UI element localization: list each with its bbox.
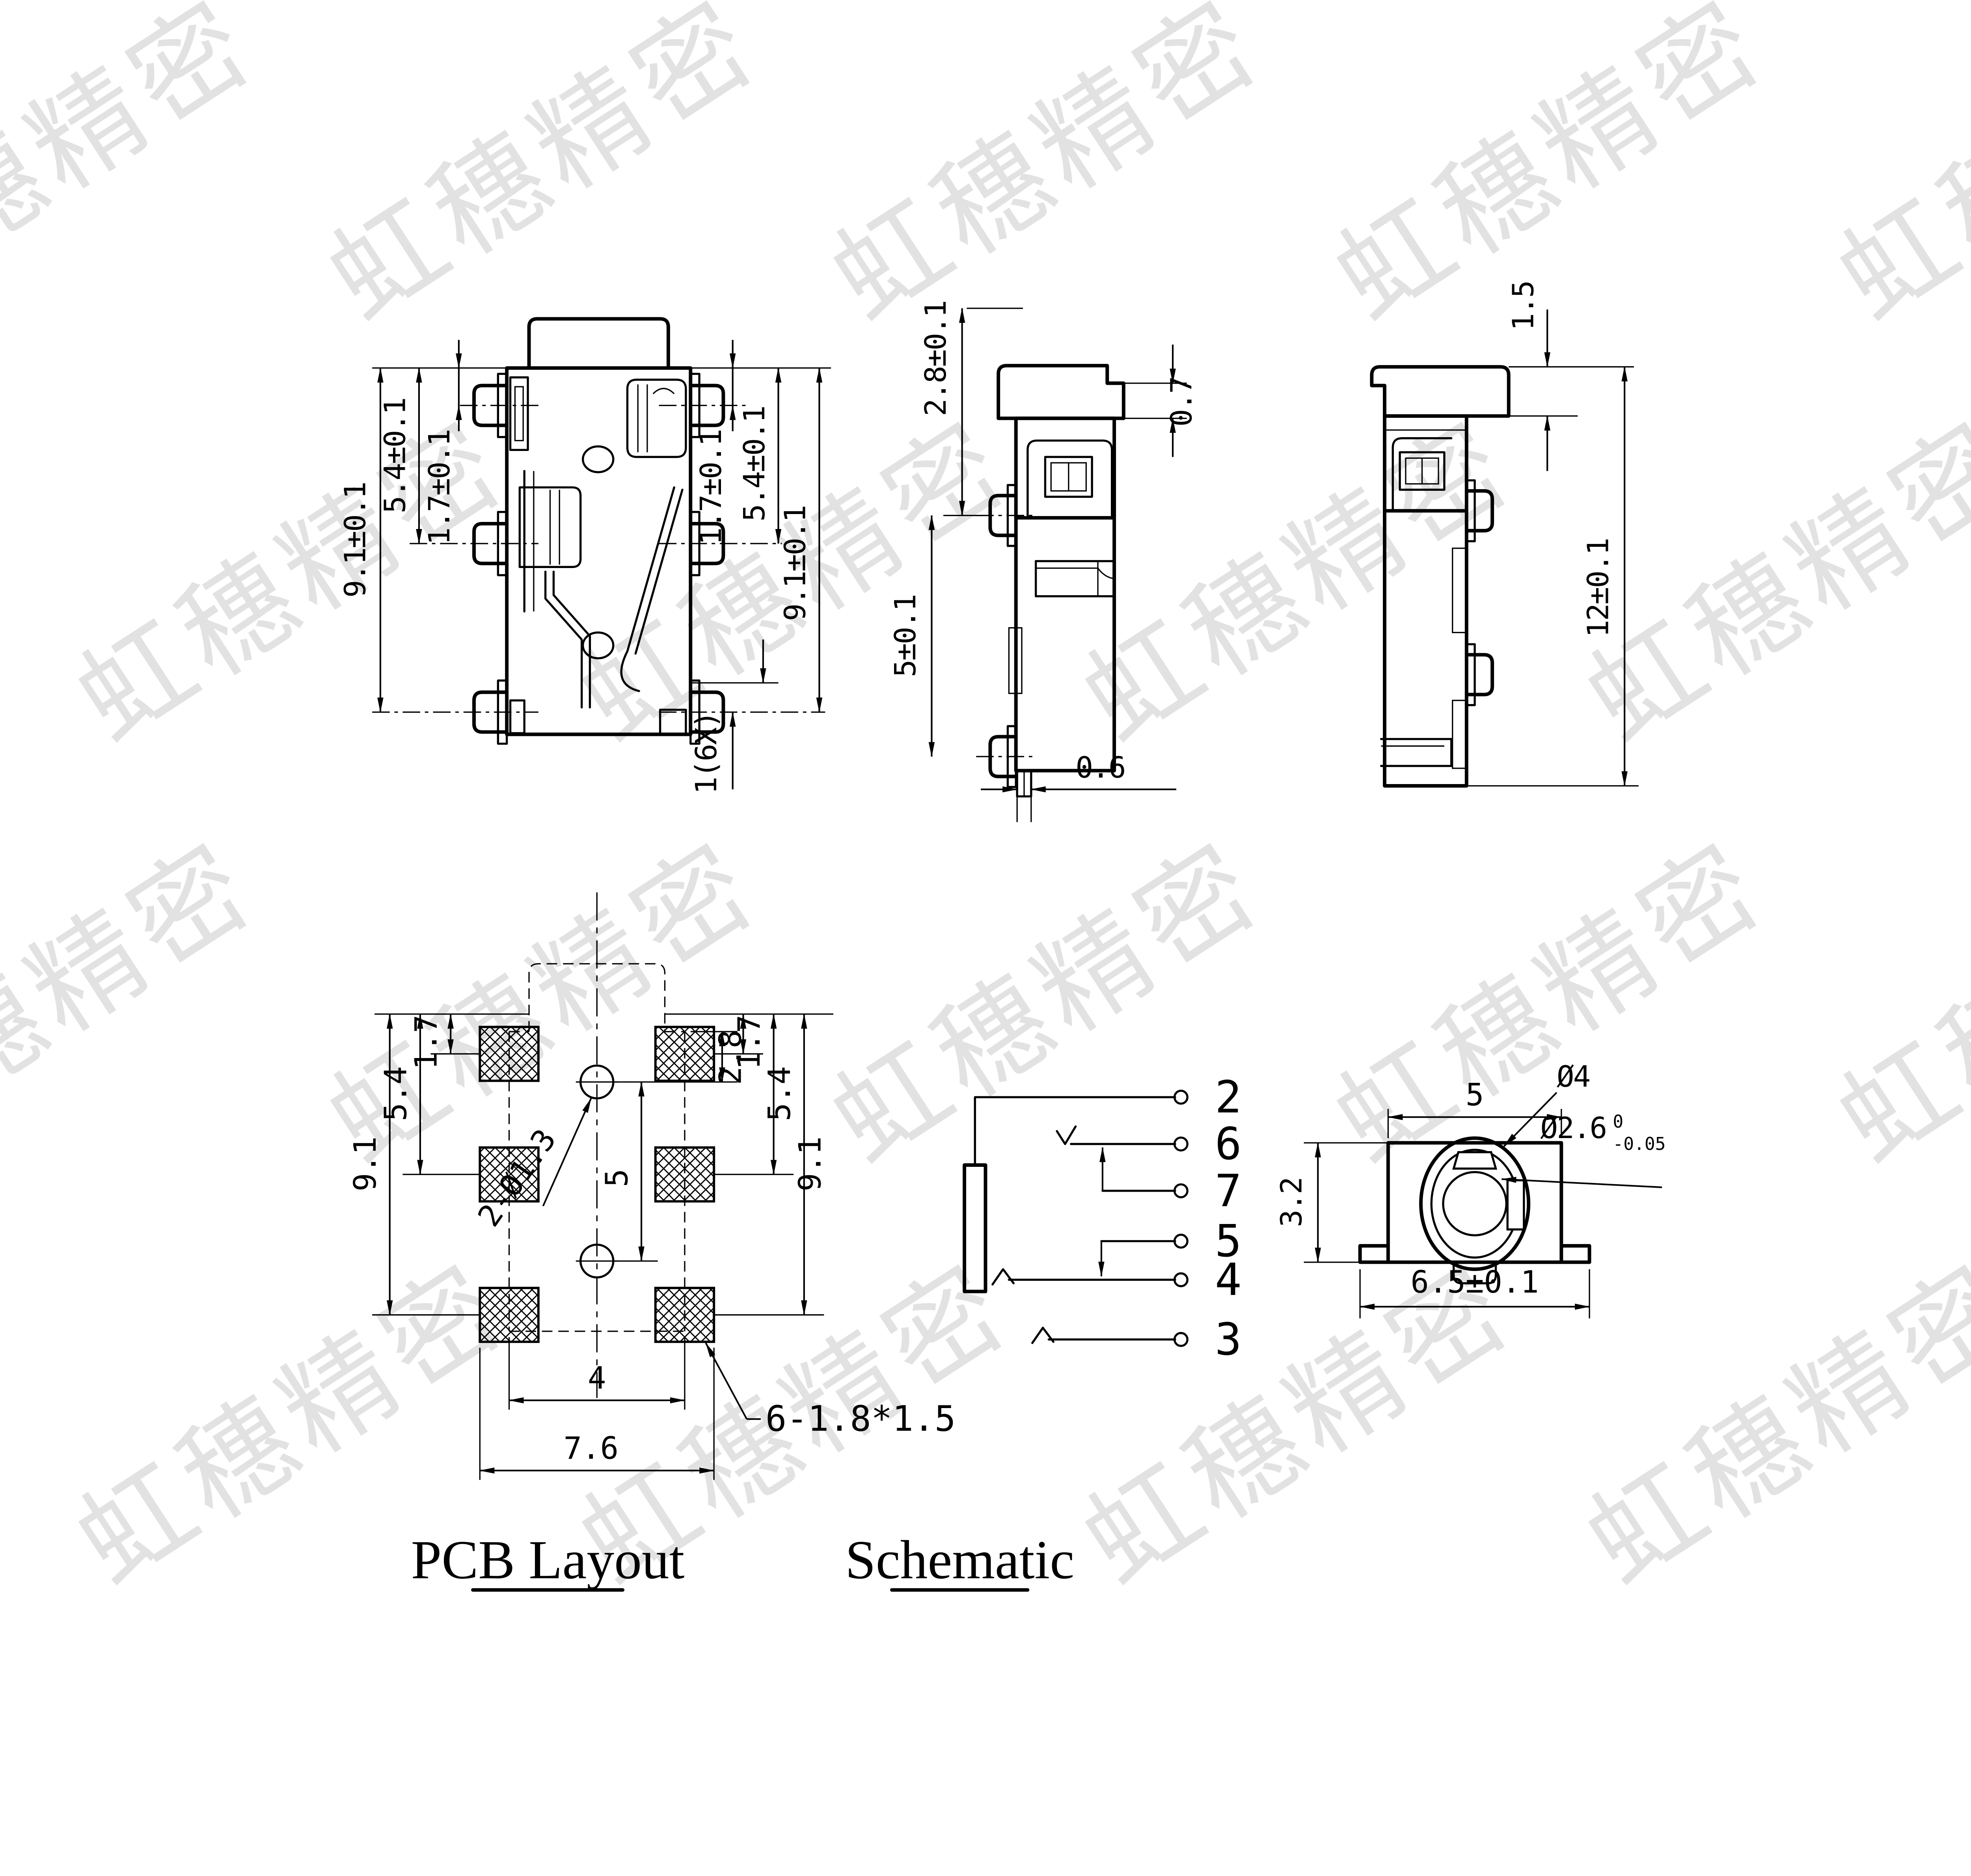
engineering-drawing: 虹穗精密虹穗精密虹穗精密虹穗精密虹穗精密虹穗精密虹穗精密虹穗精密虹穗精密虹穗精密… (0, 0, 1971, 1876)
dim-face-outer-dia: Ø4 (1557, 1060, 1590, 1094)
schematic-pin-label-6: 6 (1215, 1118, 1242, 1170)
watermark-text: 虹穗精密 (1565, 396, 1971, 767)
dim-side-b-cap-height: 1.5 (1506, 281, 1541, 331)
watermark-layer: 虹穗精密虹穗精密虹穗精密虹穗精密虹穗精密虹穗精密虹穗精密虹穗精密虹穗精密虹穗精密… (0, 0, 1971, 1610)
face-flange-right (1561, 1246, 1589, 1262)
schematic-pin6-terminal (1175, 1138, 1188, 1151)
side-a-cap (999, 366, 1124, 419)
watermark-text: 虹穗精密 (55, 396, 530, 767)
dim-face-tol-low: -0.05 (1613, 1134, 1665, 1154)
dim-front-right-overall: 9.1±0.1 (778, 506, 812, 621)
side-a-slot (1036, 561, 1114, 596)
dim-front-left-mid: 5.4±0.1 (378, 398, 412, 513)
dim-pcb-pad-pitch: 4 (588, 1361, 606, 1396)
schematic-contact-3 (1032, 1328, 1053, 1343)
schematic-pin7-terminal (1175, 1185, 1188, 1198)
side-a-body (1016, 418, 1114, 771)
watermark-text: 虹穗精密 (1313, 0, 1788, 346)
dim-face-height: 3.2 (1274, 1178, 1309, 1227)
watermark-text: 虹穗精密 (810, 0, 1285, 346)
dim-pcb-hole-pitch: 5 (599, 1169, 635, 1187)
schematic-label: Schematic (845, 1530, 1074, 1591)
watermark-text: 虹穗精密 (0, 0, 278, 346)
dim-pcb-pad-span: 7.6 (564, 1431, 618, 1466)
schematic-pin-label-4: 4 (1215, 1254, 1242, 1306)
dim-front-left-top: 1.7±0.1 (422, 430, 456, 545)
front-cap (529, 319, 668, 368)
pcb-layout-label: PCB Layout (411, 1530, 685, 1591)
schematic-pin-label-3: 3 (1215, 1313, 1242, 1366)
dim-side-b-overall-height: 12±0.1 (1581, 539, 1615, 637)
watermark-text: 虹穗精密 (1816, 0, 1971, 346)
watermark-text: 虹穗精密 (0, 817, 278, 1189)
watermark-text: 虹穗精密 (1565, 1238, 1971, 1610)
dim-pcb-left-top: 1.7 (408, 1015, 444, 1069)
dim-face-tol-high: 0 (1613, 1111, 1623, 1132)
dim-side-a-cap-height: 2.8±0.1 (918, 301, 953, 416)
schematic-pin4-terminal (1175, 1273, 1188, 1286)
schematic-pin5-terminal (1175, 1235, 1188, 1248)
face-side-notch (1507, 1180, 1524, 1230)
watermark-text: 虹穗精密 (1816, 817, 1971, 1189)
face-flange-left (1360, 1246, 1388, 1262)
schematic-pin2-terminal (1175, 1091, 1188, 1104)
dim-pcb-right-overall: 9.1 (792, 1136, 828, 1191)
schematic-contact-4 (993, 1269, 1013, 1285)
schematic-contact-6 (1057, 1127, 1076, 1144)
dim-face-width: 5 (1466, 1077, 1484, 1113)
schematic-pin3-terminal (1175, 1333, 1188, 1346)
dim-pcb-right-mid: 5.4 (762, 1066, 797, 1121)
dim-side-a-pin-pitch: 5±0.1 (888, 595, 922, 677)
side-b-slot (1381, 739, 1451, 766)
dim-front-right-mid: 5.4±0.1 (737, 406, 771, 522)
dim-face-inner-dia: Ø2.6 (1540, 1111, 1606, 1145)
schematic-pin-label-7: 7 (1215, 1164, 1242, 1217)
watermark-text: 虹穗精密 (810, 817, 1285, 1189)
side-b-cap (1372, 367, 1509, 416)
dim-pcb-left-mid: 5.4 (378, 1066, 414, 1121)
schematic-pin-label-2: 2 (1215, 1071, 1242, 1123)
dim-pcb-left-overall: 9.1 (348, 1136, 383, 1191)
dim-pcb-hole-offset: 2.8 (713, 1030, 748, 1085)
note-pcb-pads: 6-1.8*1.5 (766, 1399, 956, 1440)
dim-side-a-cap-step: 0.7 (1164, 377, 1199, 427)
dim-front-pin-note: 1(6X) (689, 712, 723, 794)
face-top-notch (1454, 1152, 1496, 1169)
watermark-text: 虹穗精密 (307, 0, 782, 346)
dim-front-left-overall: 9.1±0.1 (338, 483, 372, 598)
dim-front-right-top: 1.7±0.1 (694, 430, 728, 545)
dim-face-flange-width: 6.5±0.1 (1410, 1265, 1539, 1300)
dim-side-a-foot-width: 0.6 (1075, 751, 1125, 785)
